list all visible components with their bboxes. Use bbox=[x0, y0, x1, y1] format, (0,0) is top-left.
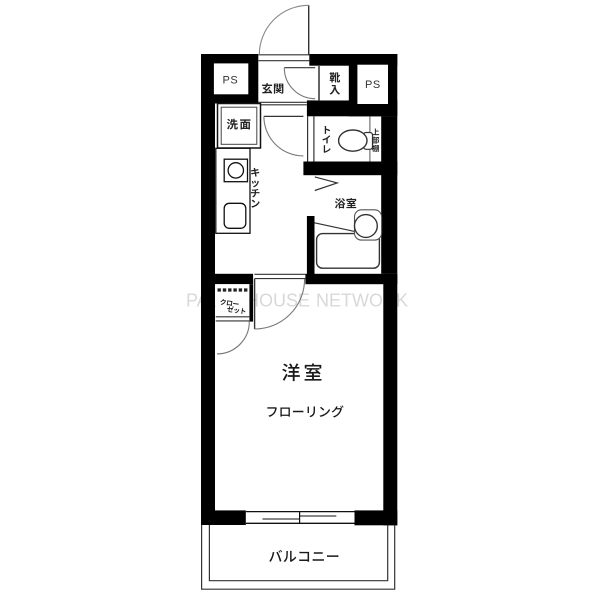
svg-text:PS: PS bbox=[223, 75, 239, 87]
svg-text:PS: PS bbox=[365, 79, 381, 91]
